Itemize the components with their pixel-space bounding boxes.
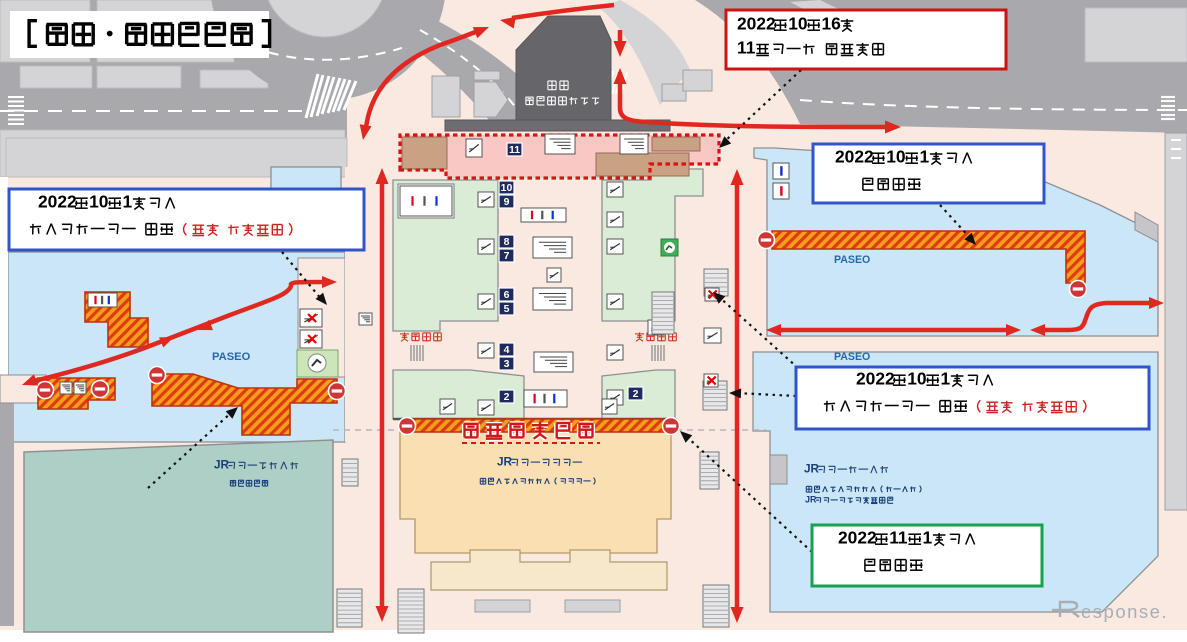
svg-text:2022: 2022 [856,369,895,389]
svg-text:11: 11 [889,528,908,548]
svg-text:JR: JR [804,462,820,476]
svg-text:2: 2 [633,388,639,400]
svg-text:16: 16 [822,14,842,34]
svg-text:11: 11 [737,38,756,58]
svg-text:8: 8 [504,236,510,248]
svg-text:2: 2 [504,391,510,403]
svg-text:10: 10 [501,182,513,194]
svg-text:10: 10 [89,192,108,212]
svg-text:4: 4 [504,344,510,356]
svg-text:PASEO: PASEO [212,351,251,363]
svg-text:5: 5 [504,303,510,315]
svg-text:10: 10 [788,14,807,34]
svg-text:JR: JR [214,458,230,472]
svg-text:JR: JR [497,455,513,469]
svg-text:PASEO: PASEO [834,254,870,266]
svg-text:2022: 2022 [38,192,77,212]
svg-text:7: 7 [504,250,510,262]
svg-text:2022: 2022 [835,147,874,167]
svg-text:3: 3 [504,358,510,370]
svg-text:10: 10 [886,147,905,167]
svg-text:11: 11 [509,144,520,156]
svg-text:1: 1 [941,369,951,389]
svg-text:1: 1 [123,192,133,212]
svg-text:esponse.: esponse. [1081,601,1168,622]
svg-text:6: 6 [504,289,510,301]
svg-text:10: 10 [907,369,926,389]
svg-text:2022: 2022 [838,528,877,548]
svg-text:1: 1 [923,528,933,548]
svg-text:9: 9 [504,196,510,208]
svg-text:1: 1 [920,147,930,167]
svg-text:PASEO: PASEO [834,351,870,363]
svg-text:JR: JR [805,495,817,505]
svg-text:2022: 2022 [737,14,776,34]
